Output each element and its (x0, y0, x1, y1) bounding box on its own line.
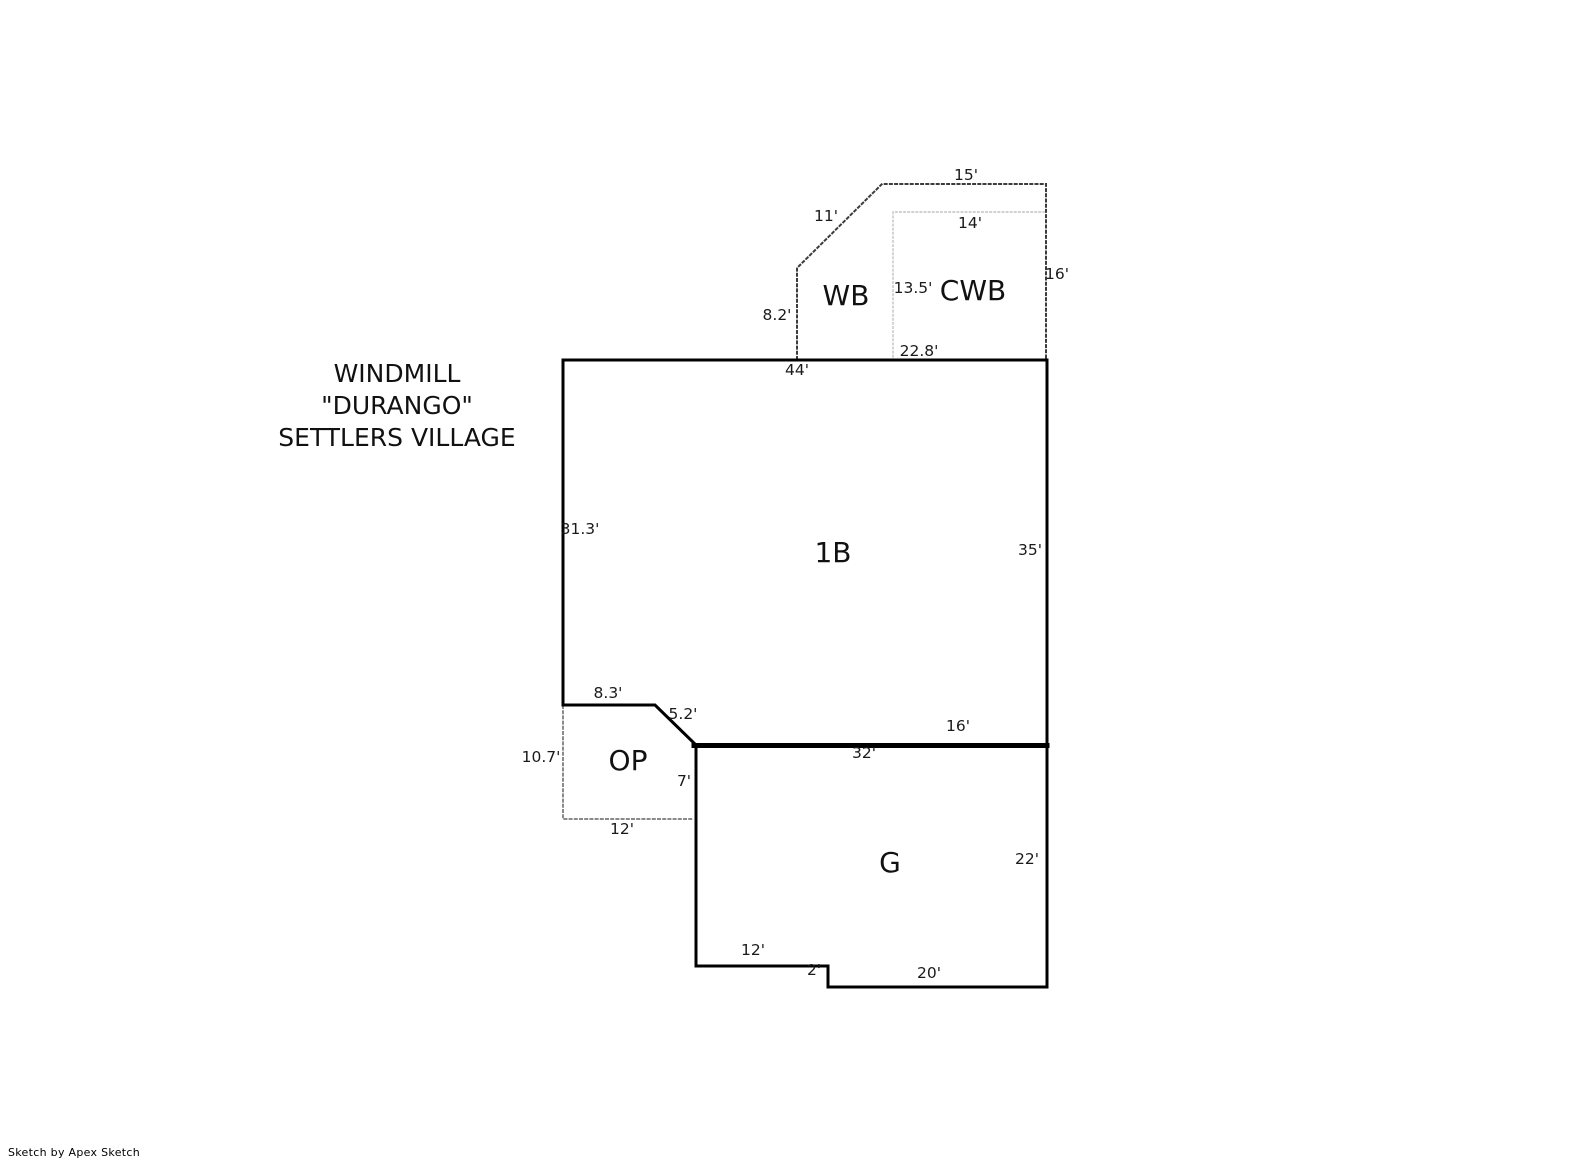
dim-op-left-10-7: 10.7' (522, 748, 561, 766)
dim-garage-right-22: 22' (1015, 850, 1039, 868)
dim-divider-16: 16' (946, 717, 970, 735)
floor-plan-drawing: WB CWB 1B OP G 15' 11' 14' 16' 13.5' 8.2… (0, 0, 1585, 1163)
dim-garage-step-2: 2' (807, 961, 821, 979)
dim-1b-right-35: 35' (1018, 541, 1042, 559)
plan-title-line-3: SETTLERS VILLAGE (278, 423, 515, 452)
dim-deck-top-15: 15' (954, 166, 978, 184)
floor-plan-canvas: WB CWB 1B OP G 15' 11' 14' 16' 13.5' 8.2… (0, 0, 1585, 1163)
dim-cwb-bottom-22-8: 22.8' (900, 342, 939, 360)
plan-title-line-2: "DURANGO" (321, 391, 473, 420)
dim-deck-diagonal-11: 11' (814, 207, 838, 225)
sketch-credit: Sketch by Apex Sketch (8, 1146, 140, 1159)
dim-cwb-top-14: 14' (958, 214, 982, 232)
dim-1b-top-44: 44' (785, 361, 809, 379)
room-label-g: G (879, 846, 901, 879)
dim-garage-bottom-20: 20' (917, 964, 941, 982)
main-floor-outline (563, 360, 1047, 987)
dim-1b-bottom-8-3: 8.3' (594, 684, 623, 702)
room-label-cwb: CWB (940, 274, 1006, 307)
room-label-1b: 1B (814, 536, 851, 569)
dim-1b-left-31-3: 31.3' (561, 520, 600, 538)
dim-garage-bottom-12: 12' (741, 941, 765, 959)
dim-op-bottom-12: 12' (610, 820, 634, 838)
dim-divider-32: 32' (852, 744, 876, 762)
dim-deck-right-16: 16' (1045, 265, 1069, 283)
plan-title-line-1: WINDMILL (334, 359, 461, 388)
dim-op-right-7: 7' (677, 772, 691, 790)
dim-deck-left-8-2: 8.2' (763, 306, 792, 324)
dim-1b-diagonal-5-2: 5.2' (669, 705, 698, 723)
room-label-op: OP (609, 744, 648, 777)
dim-cwb-left-13-5: 13.5' (894, 279, 933, 297)
room-label-wb: WB (823, 279, 870, 312)
